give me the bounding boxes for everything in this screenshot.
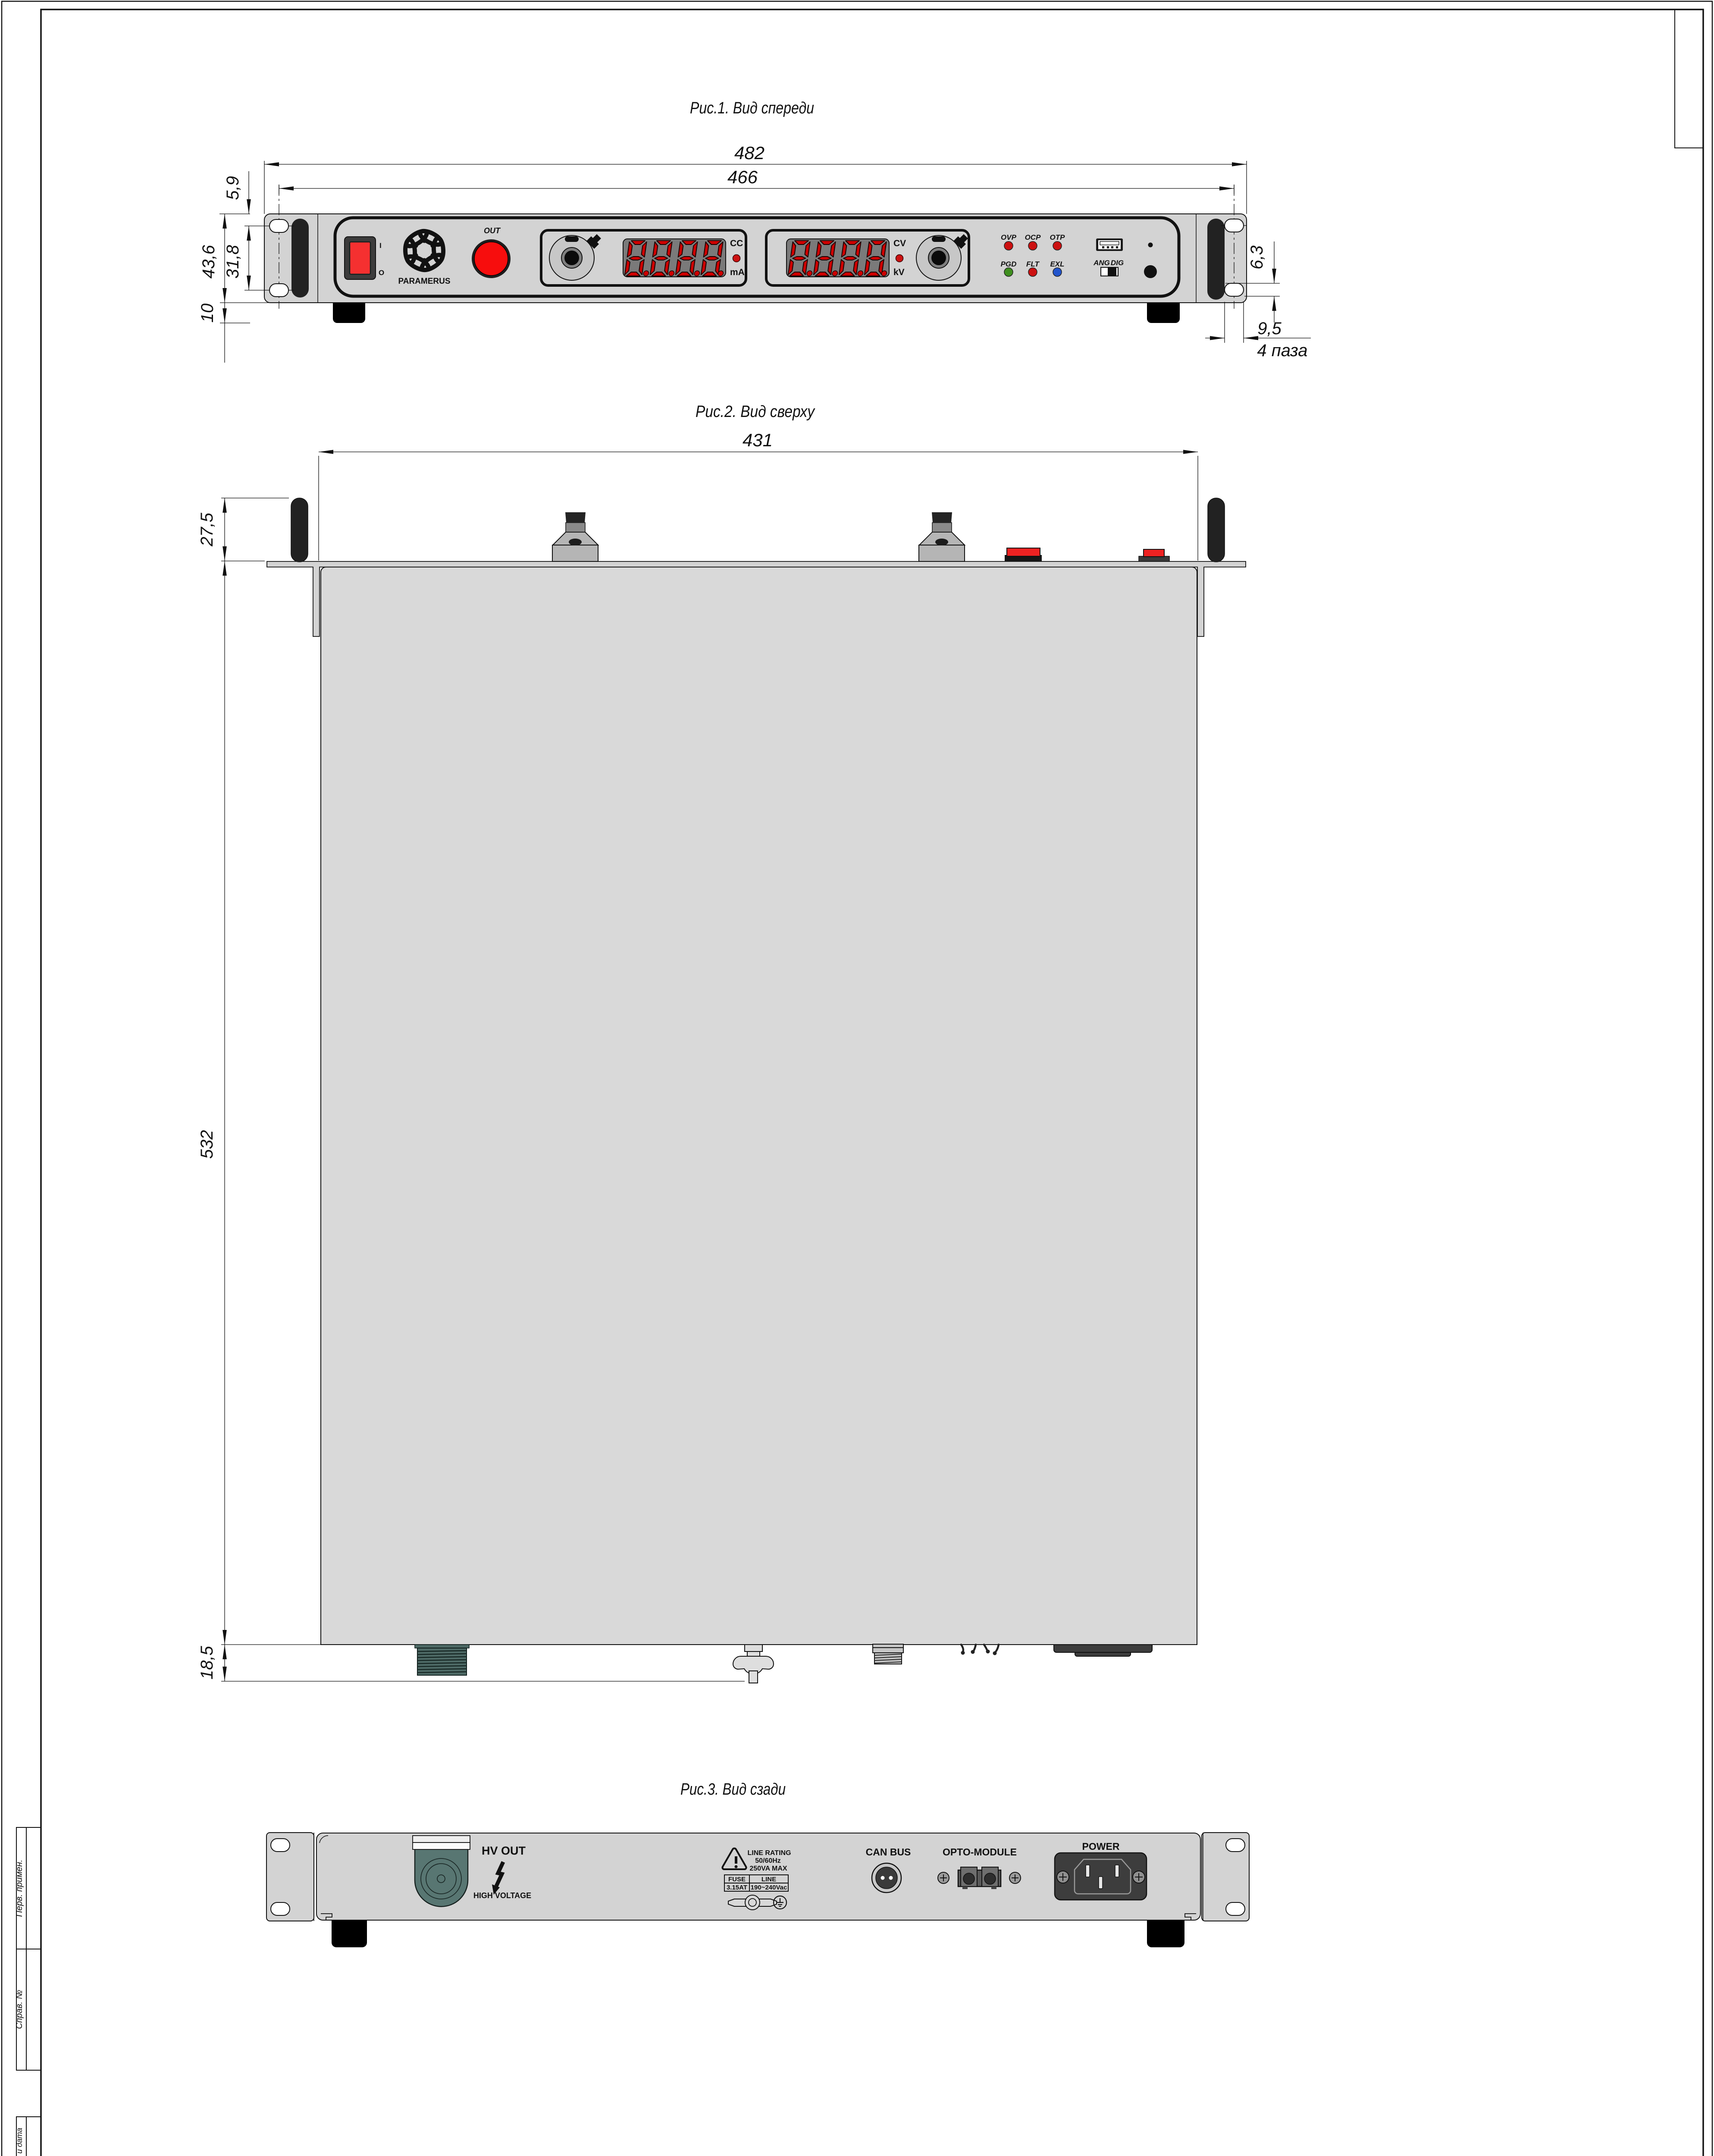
svg-text:6,3: 6,3 xyxy=(1247,245,1266,269)
svg-text:CC: CC xyxy=(730,238,743,248)
svg-text:482: 482 xyxy=(734,143,765,163)
svg-text:Рис.3. Вид сзади: Рис.3. Вид сзади xyxy=(680,1780,786,1799)
svg-text:EXL: EXL xyxy=(1050,260,1064,268)
svg-text:31,8: 31,8 xyxy=(223,244,242,279)
svg-text:mA: mA xyxy=(730,267,745,277)
svg-text:OPTO-MODULE: OPTO-MODULE xyxy=(943,1846,1017,1858)
svg-text:POWER: POWER xyxy=(1082,1841,1120,1852)
svg-text:OTP: OTP xyxy=(1050,233,1065,241)
svg-text:HIGH VOLTAGE: HIGH VOLTAGE xyxy=(473,1891,531,1900)
svg-text:532: 532 xyxy=(197,1130,216,1159)
svg-text:O: O xyxy=(379,269,384,277)
svg-text:DIG: DIG xyxy=(1111,259,1124,267)
svg-text:OVP: OVP xyxy=(1001,233,1017,241)
svg-text:27,5: 27,5 xyxy=(197,512,216,547)
svg-text:10: 10 xyxy=(198,304,217,323)
svg-text:I: I xyxy=(379,241,382,250)
svg-text:OCP: OCP xyxy=(1025,233,1041,241)
svg-text:Рис.1. Вид спереди: Рис.1. Вид спереди xyxy=(690,99,814,117)
svg-text:LINE RATING: LINE RATING xyxy=(747,1849,791,1857)
svg-text:466: 466 xyxy=(727,167,758,187)
svg-text:43,6: 43,6 xyxy=(199,244,218,279)
svg-text:CAN BUS: CAN BUS xyxy=(866,1846,911,1858)
svg-text:250VA MAX: 250VA MAX xyxy=(749,1865,787,1872)
svg-text:ANG: ANG xyxy=(1093,259,1110,267)
svg-text:Подп. и дата: Подп. и дата xyxy=(15,2128,24,2156)
svg-text:Рис.2. Вид сверху: Рис.2. Вид сверху xyxy=(696,403,815,421)
svg-text:9,5: 9,5 xyxy=(1257,319,1282,338)
svg-text:FLT: FLT xyxy=(1026,260,1040,268)
svg-text:LINE: LINE xyxy=(761,1876,776,1883)
svg-text:PGD: PGD xyxy=(1001,260,1017,268)
svg-text:CV: CV xyxy=(893,238,906,248)
svg-text:4 паза: 4 паза xyxy=(1257,341,1307,360)
svg-text:50/60Hz: 50/60Hz xyxy=(755,1857,781,1865)
svg-text:431: 431 xyxy=(743,430,773,450)
svg-text:FUSE: FUSE xyxy=(728,1876,746,1883)
svg-text:Перв. примен.: Перв. примен. xyxy=(15,1860,24,1917)
svg-text:190~240Vac: 190~240Vac xyxy=(751,1884,787,1891)
svg-text:5,9: 5,9 xyxy=(223,176,242,200)
svg-text:OUT: OUT xyxy=(484,226,501,235)
svg-text:kV: kV xyxy=(893,267,905,277)
svg-text:3.15AT: 3.15AT xyxy=(727,1884,747,1891)
svg-text:PARAMERUS: PARAMERUS xyxy=(398,277,450,286)
svg-text:HV OUT: HV OUT xyxy=(482,1844,526,1857)
svg-text:18,5: 18,5 xyxy=(197,1645,216,1680)
svg-text:Справ. №: Справ. № xyxy=(15,1990,24,2029)
